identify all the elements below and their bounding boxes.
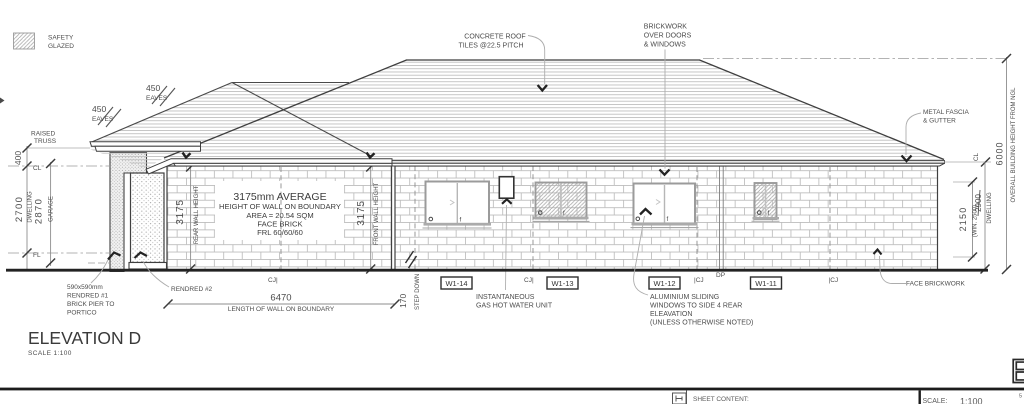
svg-text:E: E — [1011, 353, 1024, 390]
svg-text:CL: CL — [973, 152, 980, 161]
svg-text:6470: 6470 — [270, 293, 291, 304]
svg-text:SHEET CONTENT:: SHEET CONTENT: — [693, 396, 749, 403]
svg-text:1:100: 1:100 — [960, 397, 983, 404]
svg-text:INSTANTANEOUS: INSTANTANEOUS — [476, 294, 535, 301]
svg-text:(UNLESS OTHERWISE NOTED): (UNLESS OTHERWISE NOTED) — [650, 320, 753, 327]
svg-text:CONCRETE ROOF: CONCRETE ROOF — [464, 34, 525, 41]
svg-text:GAS HOT WATER UNIT: GAS HOT WATER UNIT — [476, 303, 553, 310]
svg-text:FRL 60/60/60: FRL 60/60/60 — [257, 228, 303, 237]
svg-text:BRICKWORK: BRICKWORK — [644, 24, 688, 31]
svg-text:OVER DOORS: OVER DOORS — [644, 33, 692, 40]
svg-text:WINDOWS TO SIDE 4 REAR: WINDOWS TO SIDE 4 REAR — [650, 303, 742, 310]
svg-text:STEP DOWN: STEP DOWN — [415, 274, 421, 310]
svg-text:5: 5 — [1019, 394, 1022, 400]
svg-text:LENGTH OF WALL ON BOUNDARY: LENGTH OF WALL ON BOUNDARY — [228, 306, 335, 313]
svg-text:6000: 6000 — [995, 141, 1005, 165]
svg-text:W1-12: W1-12 — [653, 279, 675, 288]
svg-text:CJ|: CJ| — [524, 277, 534, 284]
svg-text:GLAZED: GLAZED — [48, 43, 74, 50]
svg-text:SCALE 1:100: SCALE 1:100 — [28, 350, 72, 357]
svg-text:REAR WALL HEIGHT: REAR WALL HEIGHT — [194, 185, 200, 244]
svg-text:PORTICO: PORTICO — [67, 310, 97, 317]
svg-text:400: 400 — [13, 151, 23, 165]
svg-text:TRUSS: TRUSS — [34, 138, 57, 145]
svg-text:ELEVATION D: ELEVATION D — [28, 328, 141, 348]
svg-text:OVERALL BUILDING HEIGHT FROM N: OVERALL BUILDING HEIGHT FROM NGL — [1011, 87, 1017, 203]
svg-text:3175: 3175 — [356, 200, 367, 225]
svg-text:TILES @22.5 PITCH: TILES @22.5 PITCH — [458, 43, 523, 50]
svg-text:METAL FASCIA: METAL FASCIA — [923, 109, 970, 116]
svg-text:3175: 3175 — [175, 199, 186, 224]
svg-text:2700: 2700 — [14, 196, 25, 222]
svg-text:RENDRED #2: RENDRED #2 — [171, 286, 213, 293]
svg-text:2870: 2870 — [34, 198, 45, 224]
svg-text:FL: FL — [33, 252, 41, 259]
svg-text:|CJ: |CJ — [694, 277, 704, 284]
svg-text:& GUTTER: & GUTTER — [923, 118, 956, 125]
svg-text:2150: 2150 — [958, 207, 968, 232]
svg-text:FRONT WALL HEIGHT: FRONT WALL HEIGHT — [374, 182, 380, 245]
svg-text:GARAGE: GARAGE — [49, 196, 55, 222]
svg-text:RAISED: RAISED — [31, 131, 56, 138]
svg-text:|CJ: |CJ — [829, 277, 839, 284]
svg-text:FACE BRICKWORK: FACE BRICKWORK — [906, 281, 966, 288]
svg-text:W1-13: W1-13 — [551, 279, 573, 288]
svg-text:& WINDOWS: & WINDOWS — [644, 42, 686, 49]
svg-text:W1-11: W1-11 — [755, 279, 777, 288]
svg-text:HEIGHT OF WALL ON BOUNDARY: HEIGHT OF WALL ON BOUNDARY — [219, 202, 341, 211]
svg-text:ALUMINIUM SLIDING: ALUMINIUM SLIDING — [650, 294, 719, 301]
svg-text:RENDRED #1: RENDRED #1 — [67, 293, 109, 300]
svg-text:590x590mm: 590x590mm — [67, 284, 103, 291]
svg-text:BRICK PIER TO: BRICK PIER TO — [67, 301, 114, 308]
svg-text:450: 450 — [92, 104, 106, 114]
svg-text:DP: DP — [716, 272, 725, 279]
svg-text:450: 450 — [146, 83, 160, 93]
svg-text:SCALE:: SCALE: — [923, 398, 948, 404]
svg-text:CJ|: CJ| — [268, 277, 278, 284]
svg-text:ELEAVATION: ELEAVATION — [650, 311, 692, 318]
svg-text:(WIN. 2500): (WIN. 2500) — [973, 205, 979, 237]
svg-text:170: 170 — [398, 294, 408, 308]
svg-text:CL: CL — [33, 165, 42, 172]
svg-text:DWELLING: DWELLING — [987, 192, 993, 224]
svg-text:W1-14: W1-14 — [445, 279, 467, 288]
svg-text:SAFETY: SAFETY — [48, 35, 74, 42]
